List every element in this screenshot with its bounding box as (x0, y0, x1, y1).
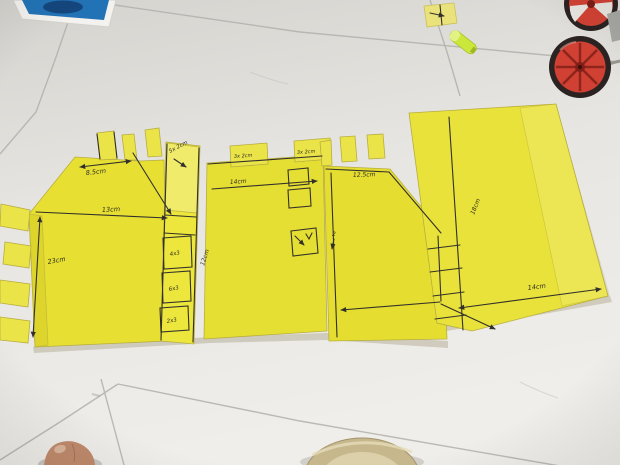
paper-tab (145, 128, 162, 157)
measurement-label: 14cm (230, 178, 247, 186)
paper-tab (0, 317, 30, 343)
folded-note (424, 3, 457, 27)
measurement-label: 13cm (102, 205, 121, 214)
paper-tab (320, 140, 332, 166)
scene: 8.5cm 13cm 23cm 5x 2cm 12cm 4x3 6x3 2x3 … (0, 0, 620, 465)
paper-tab (0, 280, 30, 307)
paper-tab (340, 136, 357, 162)
wheel-hub-center (578, 65, 582, 69)
measurement-label: 2 (332, 231, 336, 238)
paper-tab (367, 134, 385, 159)
blue-object-pattern (43, 1, 83, 14)
photo-of-paper-templates: 8.5cm 13cm 23cm 5x 2cm 12cm 4x3 6x3 2x3 … (0, 0, 620, 465)
wheel-hub (587, 0, 595, 8)
measurement-label: 12.5cm (353, 171, 376, 179)
paper-tab (3, 242, 31, 268)
